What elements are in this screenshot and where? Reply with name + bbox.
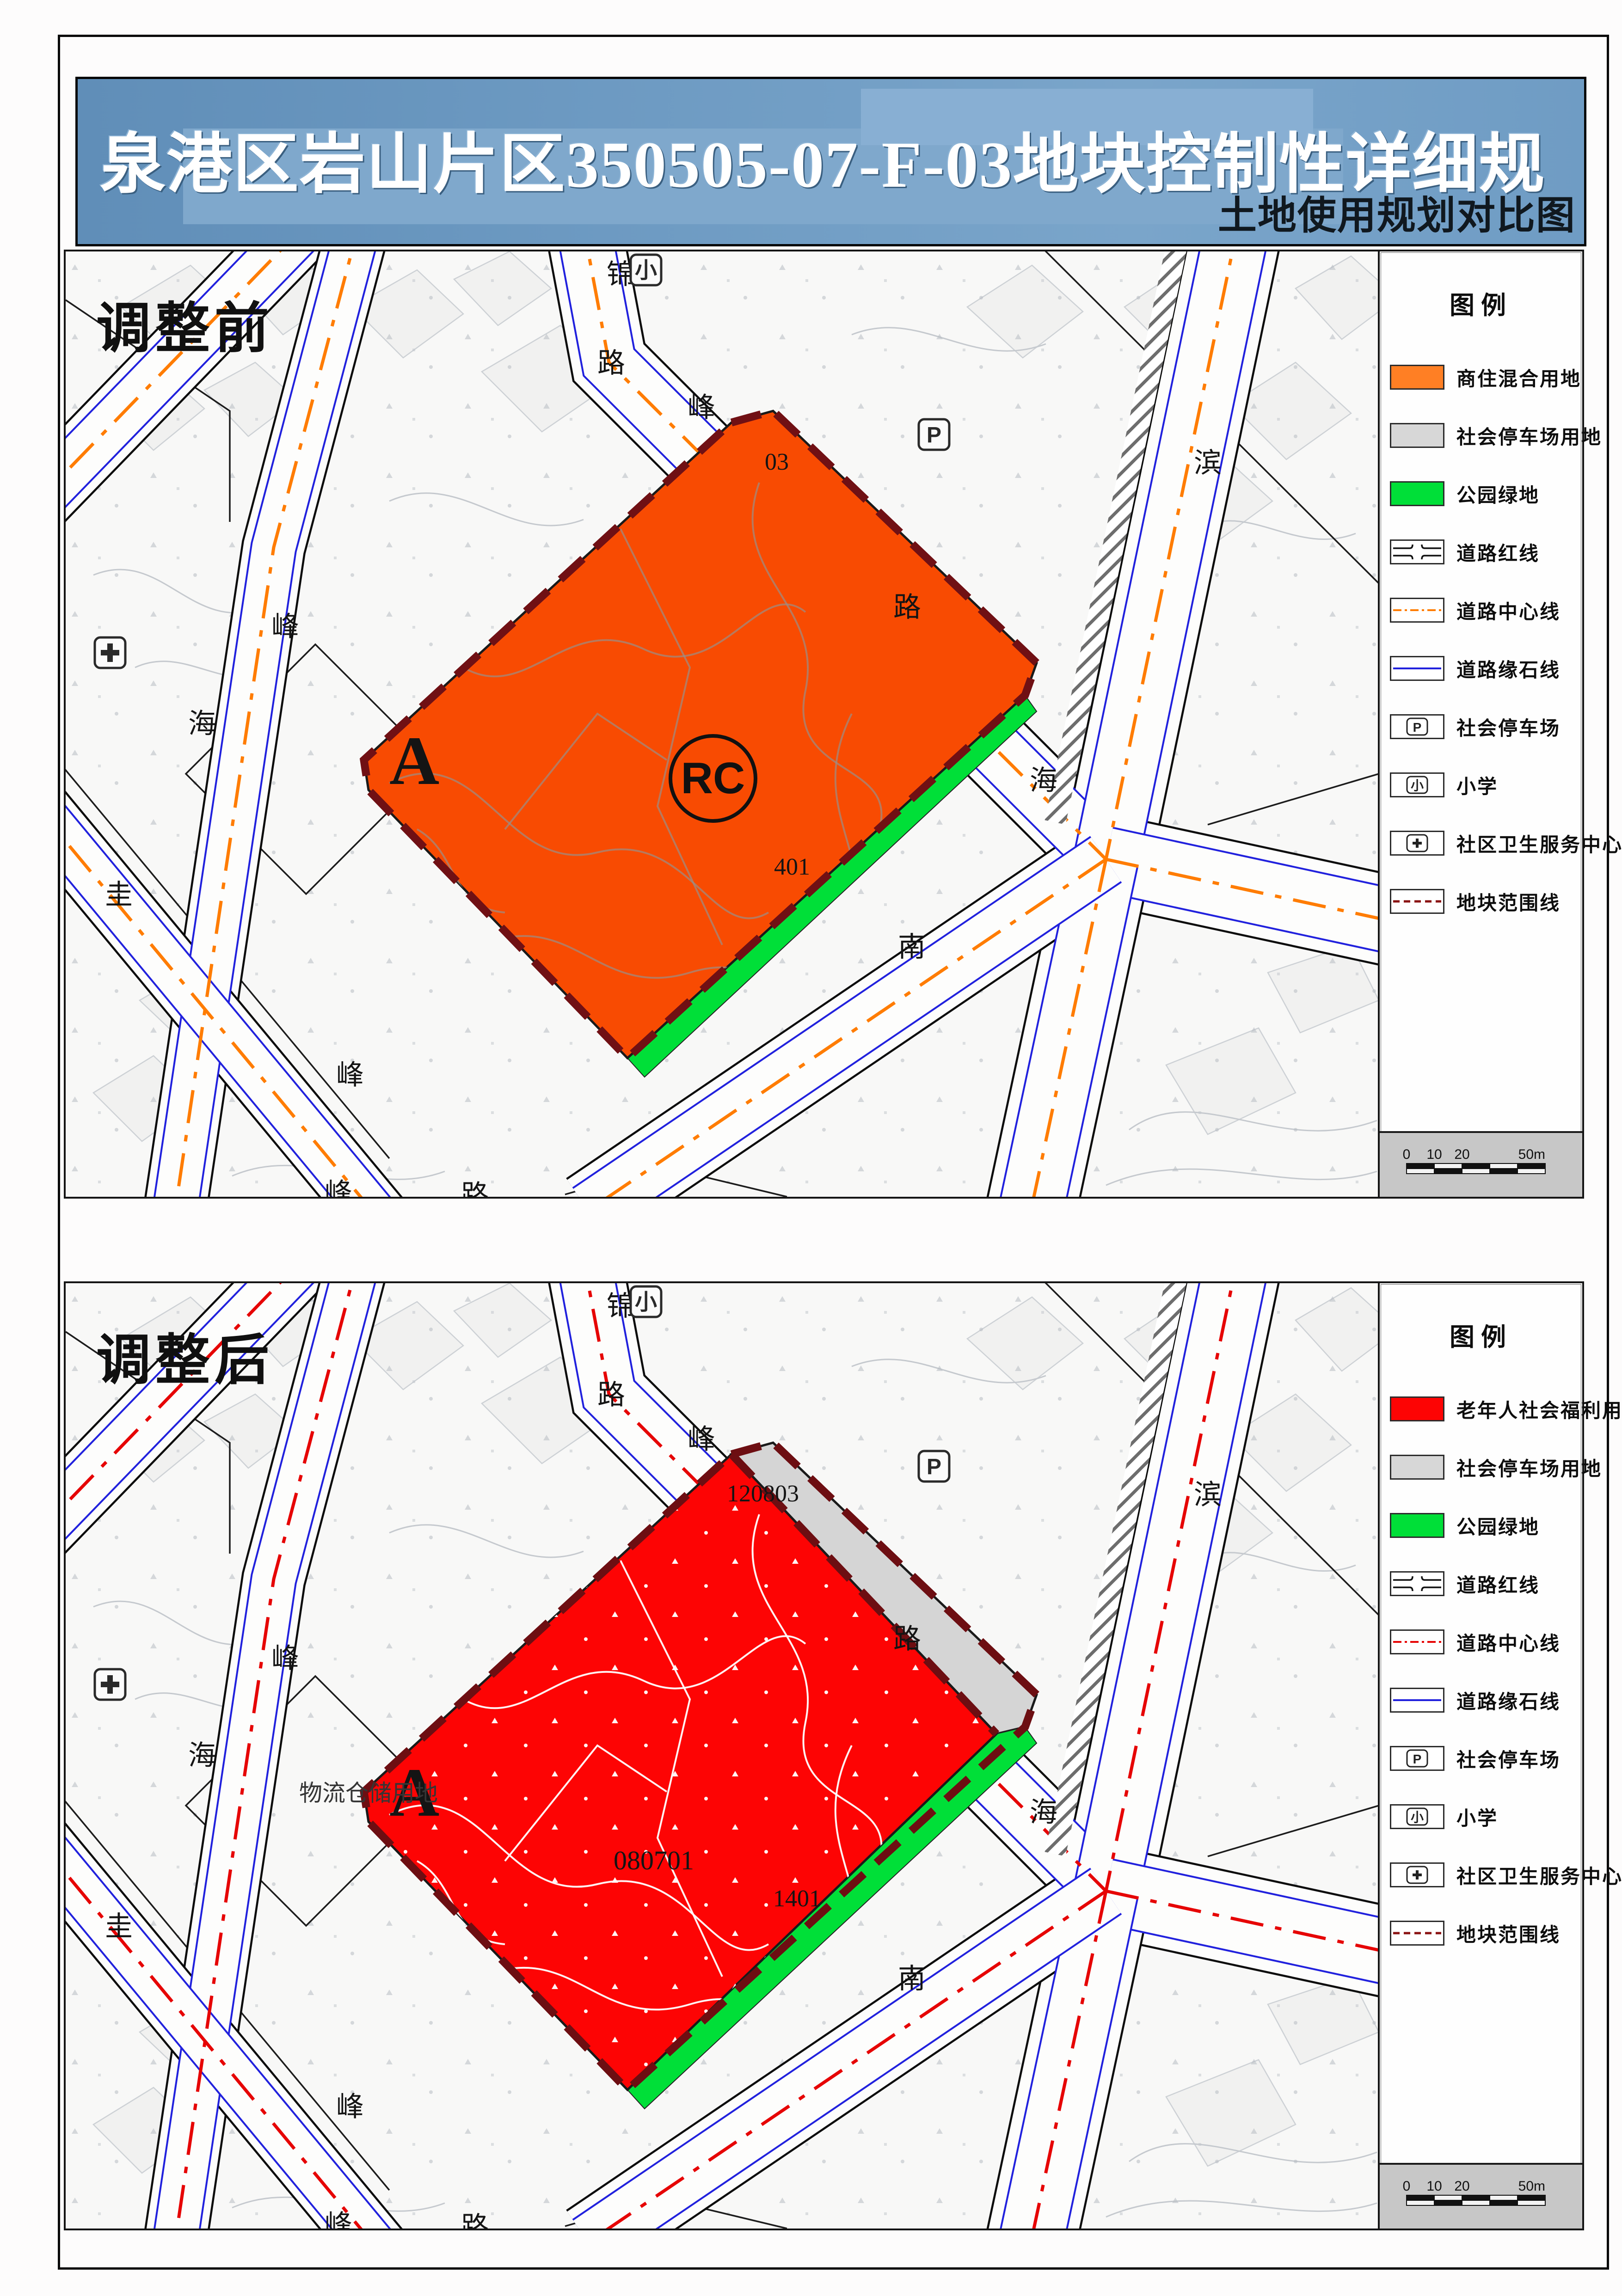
legend-label: 社会停车场 — [1456, 1745, 1561, 1773]
svg-text:10: 10 — [1426, 2179, 1442, 2194]
map-label: 03 — [765, 449, 789, 475]
map-label: 路 — [461, 2212, 489, 2229]
svg-text:P: P — [1413, 1752, 1422, 1766]
map-label: 401 — [774, 854, 810, 880]
legend-row: 小小学 — [1390, 1788, 1582, 1846]
parking-icon: P — [919, 419, 949, 450]
page: 泉港区岩山片区350505-07-F-03地块控制性详细规 土地使用规划对比图 … — [0, 0, 1622, 2296]
svg-text:0: 0 — [1403, 2179, 1411, 2194]
legend-swatch-dashdot — [1390, 1629, 1444, 1654]
legend-row: 公园绿地 — [1390, 465, 1582, 523]
legend-label: 道路红线 — [1456, 1570, 1540, 1598]
map-label: 圭 — [105, 880, 133, 910]
map-before: RC锦路峰03滨路海南峰海圭峰峰路A401小P 调整前 — [64, 250, 1381, 1199]
map-label: 物流仓储用地 — [299, 1780, 438, 1806]
map-label: 峰 — [688, 392, 715, 423]
panel-label-before: 调整前 — [96, 284, 274, 363]
scale-bar: 0102050m — [1399, 2172, 1566, 2220]
map-label: 峰 — [336, 1060, 364, 1090]
legend-swatch-icon — [1390, 1862, 1444, 1887]
legend-title: 图例 — [1380, 1316, 1582, 1353]
svg-text:10: 10 — [1426, 1147, 1442, 1162]
map-label: 峰 — [688, 1424, 715, 1455]
panel-label-after: 调整后 — [96, 1316, 274, 1395]
legend-items: 商住混合用地社会停车场用地公园绿地道路红线道路中心线道路缘石线P社会停车场小小学… — [1390, 348, 1582, 931]
health-center-icon — [95, 637, 125, 668]
map-label: 滨 — [1194, 448, 1222, 478]
map-label: A — [389, 722, 439, 799]
legend-row: 道路缘石线 — [1390, 639, 1582, 698]
legend-swatch-icon: P — [1390, 1746, 1444, 1771]
legend-row: 地块范围线 — [1390, 872, 1582, 931]
legend-row: 社会停车场用地 — [1390, 1438, 1582, 1496]
legend-row: 社区卫生服务中心 — [1390, 814, 1582, 872]
legend-row: 公园绿地 — [1390, 1496, 1582, 1555]
legend-before: 图例 商住混合用地社会停车场用地公园绿地道路红线道路中心线道路缘石线P社会停车场… — [1378, 250, 1584, 1199]
title-bar: 泉港区岩山片区350505-07-F-03地块控制性详细规 土地使用规划对比图 — [75, 77, 1586, 246]
map-label: 海 — [1030, 1797, 1057, 1828]
legend-after: 图例 老年人社会福利用地社会停车场用地公园绿地道路红线道路中心线道路缘石线P社会… — [1378, 1281, 1584, 2230]
map-label: 路 — [597, 348, 625, 379]
legend-swatch-fill — [1390, 1455, 1444, 1480]
map-type-caption: 土地使用规划对比图 — [1218, 184, 1576, 240]
legend-row: P社会停车场 — [1390, 698, 1582, 756]
legend-label: 公园绿地 — [1456, 480, 1540, 508]
map-label: 路 — [597, 1380, 625, 1410]
svg-text:小: 小 — [1411, 778, 1424, 793]
legend-label: 社区卫生服务中心 — [1456, 829, 1622, 857]
map-label: 南 — [898, 932, 926, 962]
legend-label: 社会停车场用地 — [1456, 422, 1602, 450]
legend-label: 小学 — [1456, 771, 1498, 799]
map-label: 海 — [1030, 765, 1057, 796]
legend-row: 地块范围线 — [1390, 1904, 1582, 1962]
legend-row: 小小学 — [1390, 756, 1582, 814]
svg-text:20: 20 — [1454, 1147, 1469, 1162]
legend-label: 公园绿地 — [1456, 1512, 1540, 1540]
legend-label: 社区卫生服务中心 — [1456, 1861, 1622, 1889]
legend-row: 道路缘石线 — [1390, 1671, 1582, 1729]
legend-title: 图例 — [1380, 285, 1582, 321]
legend-label: 社会停车场 — [1456, 713, 1561, 741]
primary-school-icon: 小 — [631, 1286, 661, 1317]
legend-row: P社会停车场 — [1390, 1729, 1582, 1788]
map-label: 南 — [898, 1964, 926, 1994]
legend-swatch-icon — [1390, 831, 1444, 856]
svg-text:P: P — [927, 423, 941, 447]
map-label: 120803 — [727, 1481, 799, 1507]
legend-label: 地块范围线 — [1456, 1919, 1561, 1947]
primary-school-icon: 小 — [631, 255, 661, 285]
legend-swatch-cross — [1390, 539, 1444, 564]
map-before-canvas: RC锦路峰03滨路海南峰海圭峰峰路A401小P — [66, 251, 1379, 1197]
legend-swatch-solid — [1390, 656, 1444, 681]
legend-swatch-dashed — [1390, 889, 1444, 914]
legend-items: 老年人社会福利用地社会停车场用地公园绿地道路红线道路中心线道路缘石线P社会停车场… — [1390, 1380, 1582, 1962]
legend-label: 小学 — [1456, 1803, 1498, 1831]
legend-row: 商住混合用地 — [1390, 348, 1582, 406]
legend-swatch-fill — [1390, 423, 1444, 448]
legend-swatch-dashed — [1390, 1921, 1444, 1946]
legend-swatch-fill — [1390, 365, 1444, 390]
legend-label: 老年人社会福利用地 — [1456, 1395, 1622, 1423]
map-label: 海 — [188, 709, 216, 739]
svg-text:P: P — [927, 1455, 941, 1479]
map-label: 路 — [893, 592, 921, 623]
svg-text:50m: 50m — [1518, 1147, 1545, 1162]
map-label: 海 — [188, 1740, 216, 1771]
legend-label: 道路缘石线 — [1456, 655, 1561, 683]
legend-label: 社会停车场用地 — [1456, 1453, 1602, 1482]
map-label: 路 — [461, 1180, 489, 1197]
svg-text:50m: 50m — [1518, 2179, 1545, 2194]
svg-text:小: 小 — [1411, 1810, 1424, 1825]
legend-swatch-cross — [1390, 1571, 1444, 1596]
svg-text:小: 小 — [635, 258, 657, 283]
legend-swatch-fill — [1390, 1513, 1444, 1538]
map-label: 圭 — [105, 1911, 133, 1942]
legend-swatch-fill — [1390, 1396, 1444, 1421]
scale-bar-band: 0102050m — [1380, 2163, 1582, 2229]
map-label: 路 — [893, 1624, 921, 1654]
svg-text:P: P — [1413, 720, 1422, 735]
legend-label: 商住混合用地 — [1456, 363, 1581, 392]
map-after-canvas: 锦路峰120803滨路海南峰海圭峰峰路A1401080701物流仓储用地小P — [66, 1283, 1379, 2229]
legend-swatch-icon: 小 — [1390, 772, 1444, 797]
legend-label: 道路中心线 — [1456, 596, 1561, 625]
health-center-icon — [95, 1669, 125, 1700]
legend-row: 社会停车场用地 — [1390, 406, 1582, 465]
legend-label: 地块范围线 — [1456, 888, 1561, 916]
legend-row: 老年人社会福利用地 — [1390, 1380, 1582, 1438]
map-label: 峰 — [325, 1178, 352, 1197]
svg-text:小: 小 — [635, 1290, 657, 1315]
legend-row: 道路中心线 — [1390, 1613, 1582, 1671]
map-label: 峰 — [271, 1643, 299, 1674]
legend-swatch-dashdot — [1390, 598, 1444, 623]
legend-label: 道路中心线 — [1456, 1628, 1561, 1656]
parking-icon: P — [919, 1451, 949, 1482]
legend-swatch-fill — [1390, 481, 1444, 506]
map-after: 锦路峰120803滨路海南峰海圭峰峰路A1401080701物流仓储用地小P 调… — [64, 1281, 1381, 2230]
map-label: 峰 — [271, 612, 299, 642]
map-label: 080701 — [614, 1845, 694, 1875]
landuse-code: RC — [681, 753, 745, 803]
map-label: 峰 — [336, 2092, 364, 2122]
map-label: 滨 — [1194, 1480, 1222, 1510]
scale-bar: 0102050m — [1399, 1140, 1566, 1188]
legend-swatch-icon: P — [1390, 714, 1444, 739]
map-label: 峰 — [325, 2210, 352, 2229]
map-label: 1401 — [773, 1886, 821, 1912]
page-border: 泉港区岩山片区350505-07-F-03地块控制性详细规 土地使用规划对比图 … — [58, 35, 1609, 2270]
legend-swatch-solid — [1390, 1688, 1444, 1713]
svg-text:20: 20 — [1454, 2179, 1469, 2194]
legend-row: 道路红线 — [1390, 523, 1582, 581]
legend-row: 社区卫生服务中心 — [1390, 1846, 1582, 1904]
legend-label: 道路红线 — [1456, 538, 1540, 566]
legend-swatch-icon: 小 — [1390, 1804, 1444, 1829]
legend-row: 道路中心线 — [1390, 581, 1582, 639]
svg-text:0: 0 — [1403, 1147, 1411, 1162]
legend-row: 道路红线 — [1390, 1555, 1582, 1613]
scale-bar-band: 0102050m — [1380, 1131, 1582, 1197]
legend-label: 道路缘石线 — [1456, 1686, 1561, 1714]
